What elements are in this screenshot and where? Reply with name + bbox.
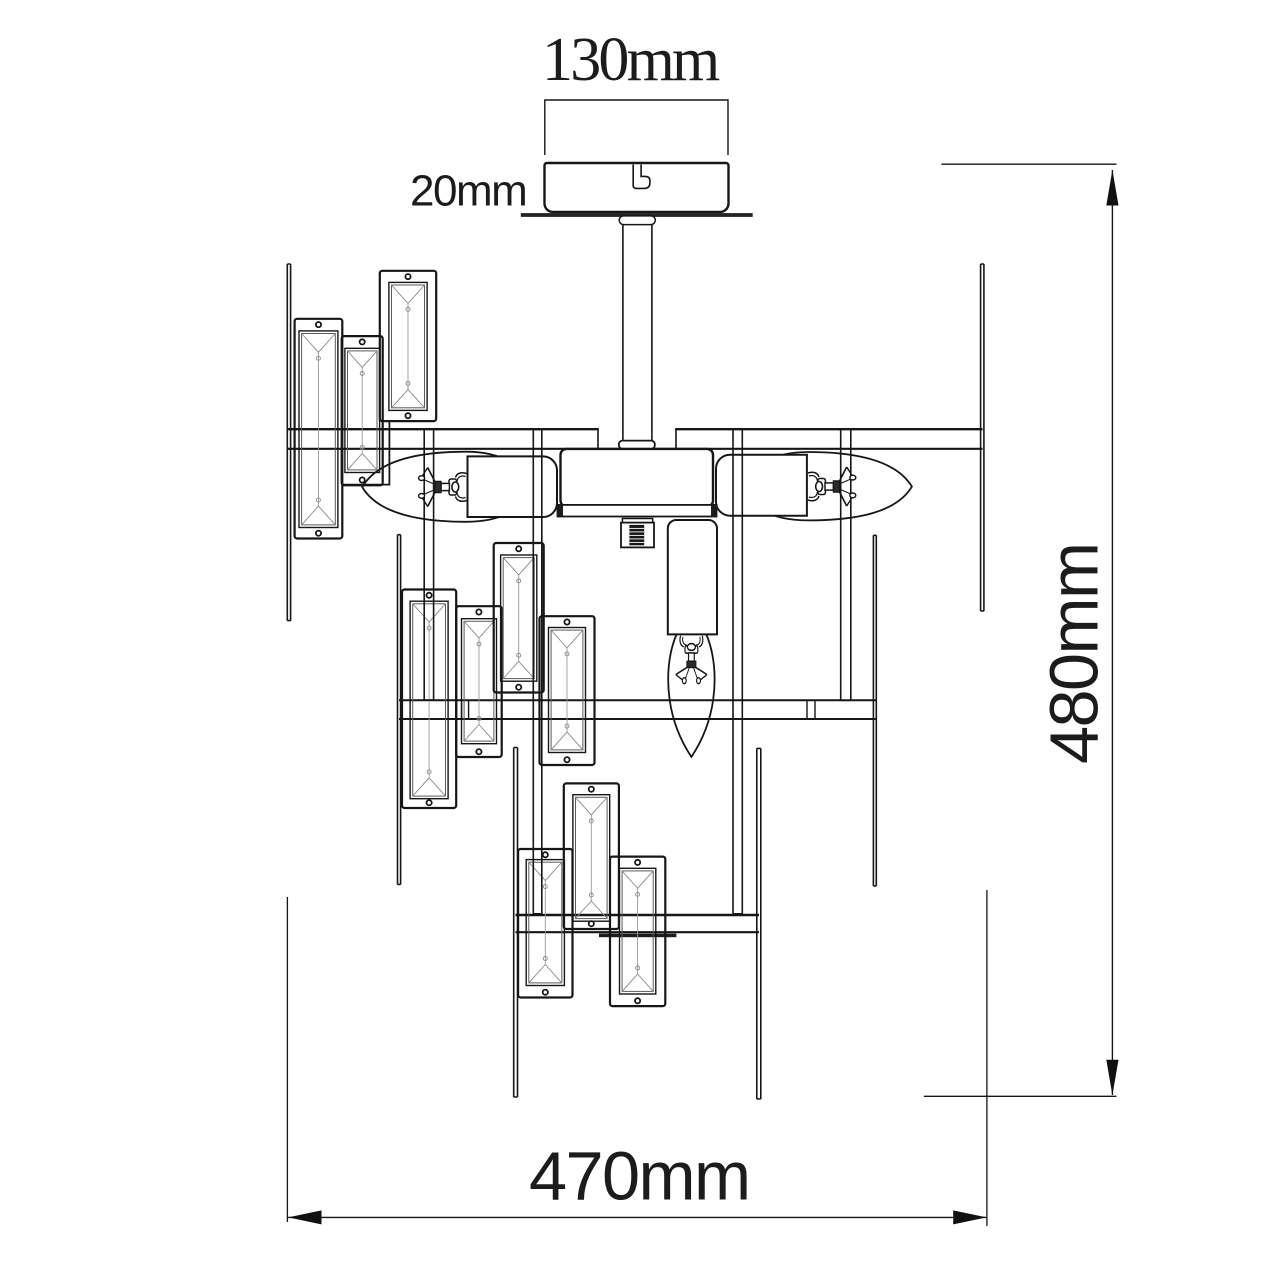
- svg-text:20mm: 20mm: [410, 167, 526, 216]
- svg-text:130mm: 130mm: [542, 26, 720, 94]
- svg-text:470mm: 470mm: [529, 1138, 749, 1215]
- svg-text:480mm: 480mm: [1036, 544, 1113, 764]
